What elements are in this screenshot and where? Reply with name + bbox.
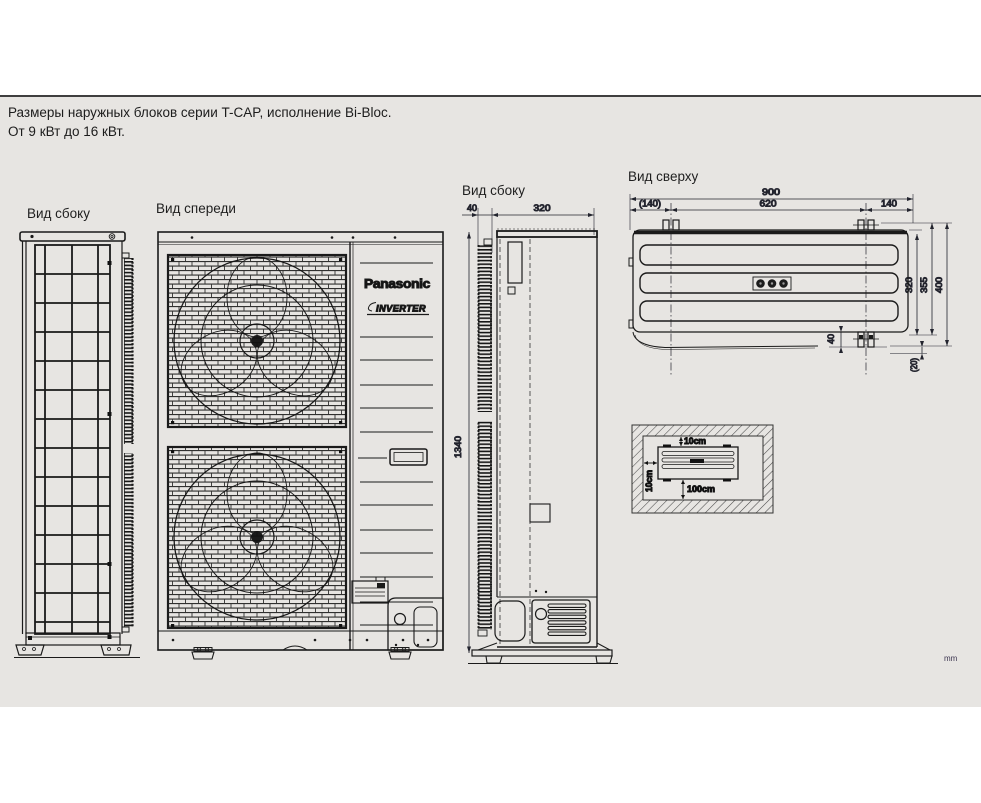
- dim-height-1340: 1340: [453, 232, 471, 653]
- top-slat: [640, 301, 898, 321]
- side-view-left-drawing: [12, 225, 147, 670]
- side-right-dimensions: 40 320 1340: [453, 203, 594, 653]
- dim-body-depth: 320: [904, 277, 914, 293]
- dim-body-depth: 320: [534, 203, 551, 213]
- page-title-line-2: От 9 кВт до 16 кВт.: [8, 122, 391, 141]
- page-title-line-1: Размеры наружных блоков серии T-CAP, исп…: [8, 103, 391, 122]
- heat-exchanger-fins: [122, 253, 134, 632]
- page-title: Размеры наружных блоков серии T-CAP, исп…: [8, 103, 391, 141]
- foot: [486, 656, 502, 663]
- terminal-box: [352, 577, 388, 603]
- front-cabinet: Panasonic INVERTER: [158, 232, 443, 659]
- foot: [596, 656, 612, 663]
- view-label-top: Вид сверху: [628, 169, 698, 184]
- side-right-unit: [468, 229, 618, 664]
- cap-screws: [191, 236, 397, 239]
- dim-height: 1340: [453, 436, 463, 458]
- bottom-screws: [172, 639, 430, 642]
- document-page: Размеры наружных блоков серии T-CAP, исп…: [0, 0, 981, 803]
- top-view-drawing: 900 (140) 620 140 320 355 400 40: [625, 185, 981, 383]
- dim-fin-depth: 40: [467, 203, 477, 213]
- view-label-front: Вид спереди: [156, 201, 236, 216]
- top-plate: [497, 231, 597, 237]
- clearance-diagram: 10cm 10cm 100cm: [628, 420, 778, 520]
- view-label-side-left: Вид сбоку: [27, 206, 90, 221]
- inverter-badge: INVERTER: [367, 303, 429, 315]
- panasonic-logo: Panasonic: [364, 277, 430, 291]
- pipe-connections: [753, 277, 791, 290]
- screw-icon: [111, 235, 113, 237]
- clearance-top-gap: 10cm: [684, 436, 706, 446]
- valve-compartment: [388, 598, 443, 650]
- handle: [508, 242, 522, 283]
- dim-overall-width: 900: [762, 187, 780, 197]
- foot: [16, 645, 44, 655]
- dim-left-bracket-offset: (140): [639, 199, 661, 209]
- foot: [101, 645, 131, 655]
- clearance-front-gap: 100cm: [687, 484, 715, 494]
- drain-pan: [633, 332, 818, 350]
- mount-points: [28, 261, 112, 640]
- dim-right-bracket-offset: 140: [881, 199, 897, 209]
- service-door: [414, 607, 437, 647]
- dim-bracket-height: 40: [826, 334, 836, 344]
- display-window: [390, 449, 427, 465]
- top-slat: [640, 245, 898, 265]
- pipe-hole: [395, 614, 406, 625]
- side-left-unit: [14, 232, 140, 658]
- heat-exchanger-fins: [477, 239, 493, 636]
- screw-icon: [30, 235, 33, 238]
- screw-icon: [109, 234, 115, 240]
- front-view-drawing: Panasonic INVERTER: [150, 225, 450, 665]
- dim-mid-depth: 355: [919, 277, 929, 293]
- dim-bracket-spacing: 620: [760, 199, 777, 209]
- clearance-side-gap: 10cm: [644, 470, 654, 492]
- service-door: [495, 601, 525, 641]
- clearance-dimensions: 10cm 10cm 100cm: [644, 436, 715, 499]
- hidden-lines: [500, 239, 530, 647]
- base-plate: [472, 650, 612, 656]
- panel-slats: [360, 263, 433, 625]
- vent-panel: [532, 600, 590, 643]
- dim-overall-depth: 400: [934, 277, 944, 293]
- dim-rear-gap: (20): [909, 358, 919, 372]
- clearance-unit: [658, 445, 738, 482]
- inverter-badge-text: INVERTER: [376, 304, 426, 314]
- fan-grille-lower: [169, 448, 345, 627]
- side-view-right-drawing: 40 320 1340: [448, 195, 633, 665]
- rear-bracket: [530, 504, 550, 522]
- units-note: mm: [944, 654, 957, 663]
- fan-grille-upper: [169, 256, 345, 426]
